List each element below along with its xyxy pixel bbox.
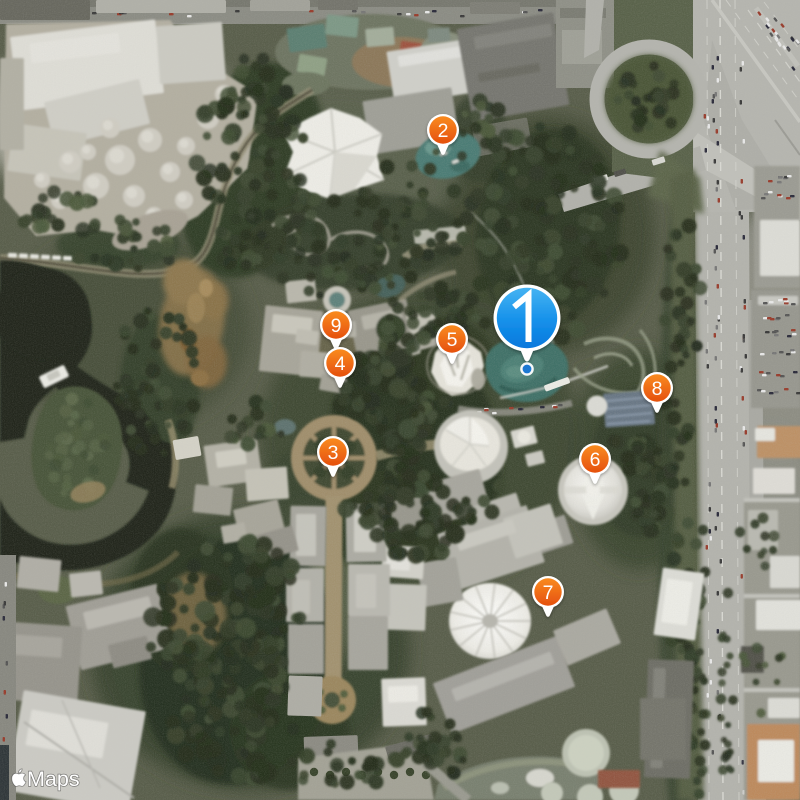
svg-text:4: 4 [335, 353, 346, 375]
svg-text:Maps: Maps [27, 767, 80, 791]
svg-text:3: 3 [328, 442, 339, 464]
svg-text:8: 8 [652, 378, 663, 400]
svg-text:2: 2 [438, 120, 449, 142]
svg-text:6: 6 [590, 449, 601, 471]
svg-text:7: 7 [543, 582, 554, 604]
svg-text:5: 5 [447, 329, 458, 351]
svg-text:9: 9 [331, 315, 342, 337]
